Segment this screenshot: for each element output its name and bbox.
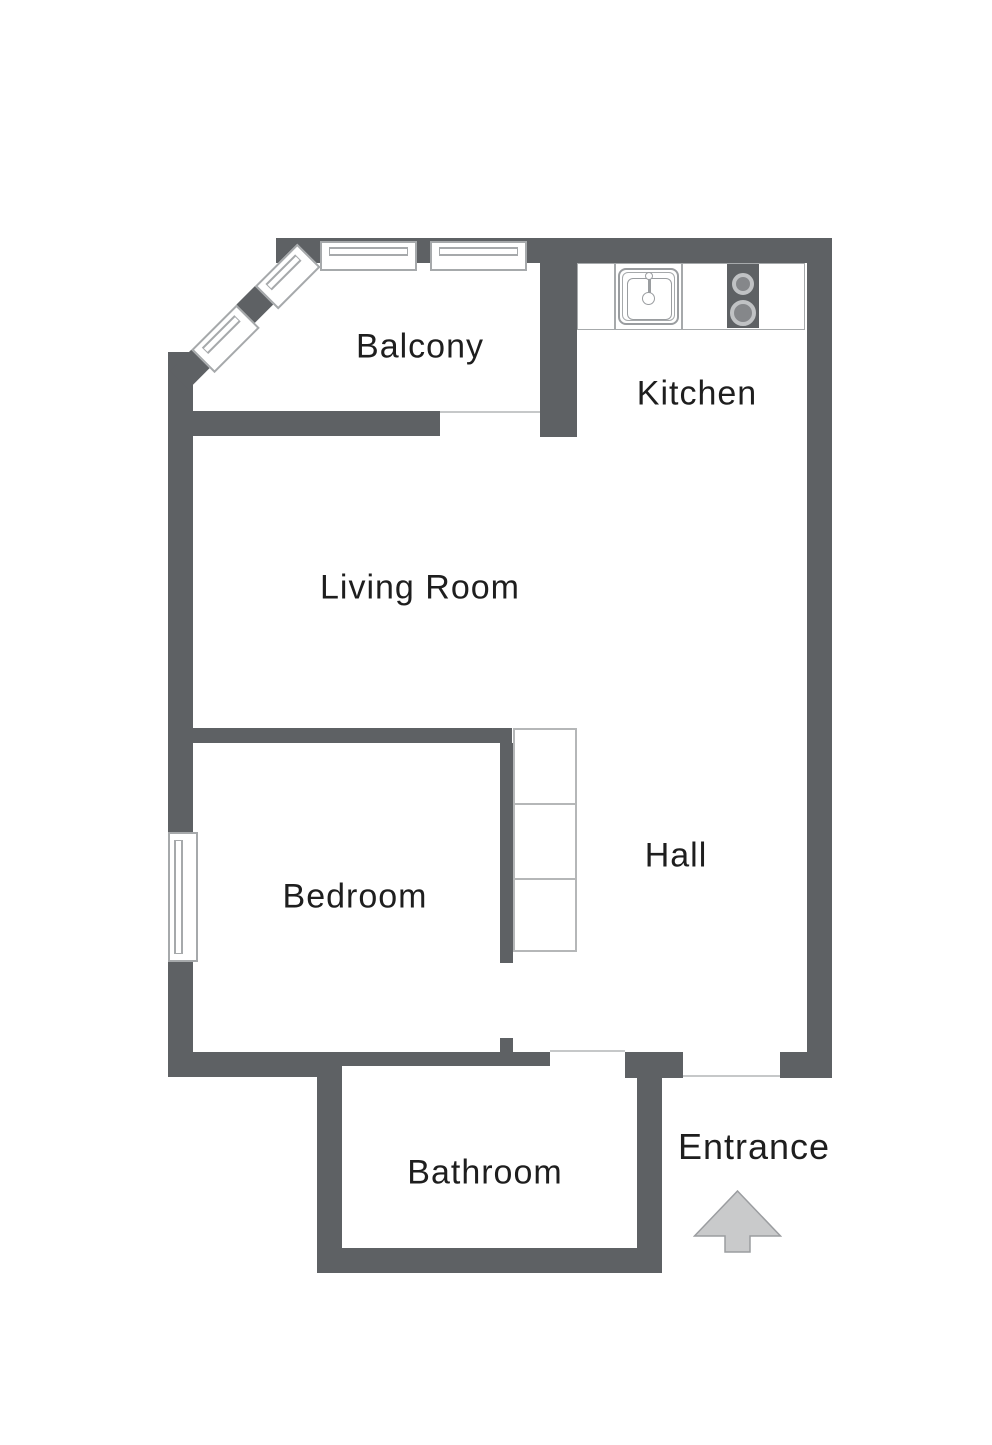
room-label-balcony: Balcony <box>356 328 484 367</box>
sink-drain <box>642 292 655 305</box>
wall-bedroom-door-jamb <box>500 1038 513 1052</box>
room-label-kitchen: Kitchen <box>637 375 757 414</box>
sink-icon <box>618 268 679 325</box>
balcony-door-threshold <box>440 411 540 413</box>
wall-balcony-bottom <box>193 411 440 436</box>
balcony-window-icon <box>430 241 527 271</box>
wall-bathroom-right <box>637 1052 662 1273</box>
entrance-door-threshold <box>683 1075 780 1077</box>
balcony-window-icon <box>320 241 417 271</box>
wall-livingroom-bedroom-divider <box>193 728 512 743</box>
window-glazing <box>202 315 241 354</box>
cabinet-divider <box>515 878 575 880</box>
room-label-bathroom: Bathroom <box>407 1154 562 1193</box>
wall-bedroom-south <box>168 1052 342 1077</box>
burner-icon <box>730 300 756 326</box>
entrance-label: Entrance <box>678 1126 830 1168</box>
wall-bathroom-bottom <box>317 1248 662 1273</box>
counter-divider <box>681 264 683 329</box>
entrance-arrow-icon <box>693 1190 782 1253</box>
wall-bedroom-right <box>500 743 513 963</box>
kitchen-counter <box>577 263 805 330</box>
cabinet-divider <box>515 803 575 805</box>
wall-hall-bottom <box>625 1052 683 1078</box>
counter-divider <box>614 264 616 329</box>
window-glazing <box>174 840 183 954</box>
wall-right <box>807 238 832 1078</box>
bathroom-door-threshold <box>550 1050 625 1052</box>
burner-icon <box>732 273 754 295</box>
room-label-living-room: Living Room <box>320 569 520 608</box>
window-glazing <box>265 254 301 290</box>
window-glazing <box>329 247 408 256</box>
wall-entrance-right <box>780 1052 832 1078</box>
bedroom-window-icon <box>168 832 198 962</box>
wall-left-upper <box>168 352 193 832</box>
window-glazing <box>439 247 518 256</box>
floor-plan: Balcony Kitchen Living Room Bedroom Hall… <box>0 0 992 1445</box>
wall-balcony-kitchen-divider <box>540 263 577 437</box>
wall-bathroom-left <box>317 1052 342 1273</box>
wall-bathroom-top <box>342 1052 550 1066</box>
wardrobe-icon <box>513 728 577 952</box>
room-label-bedroom: Bedroom <box>283 878 428 917</box>
room-label-hall: Hall <box>645 837 708 876</box>
balcony-diagonal-wall <box>170 244 316 390</box>
stove-icon <box>727 264 759 328</box>
